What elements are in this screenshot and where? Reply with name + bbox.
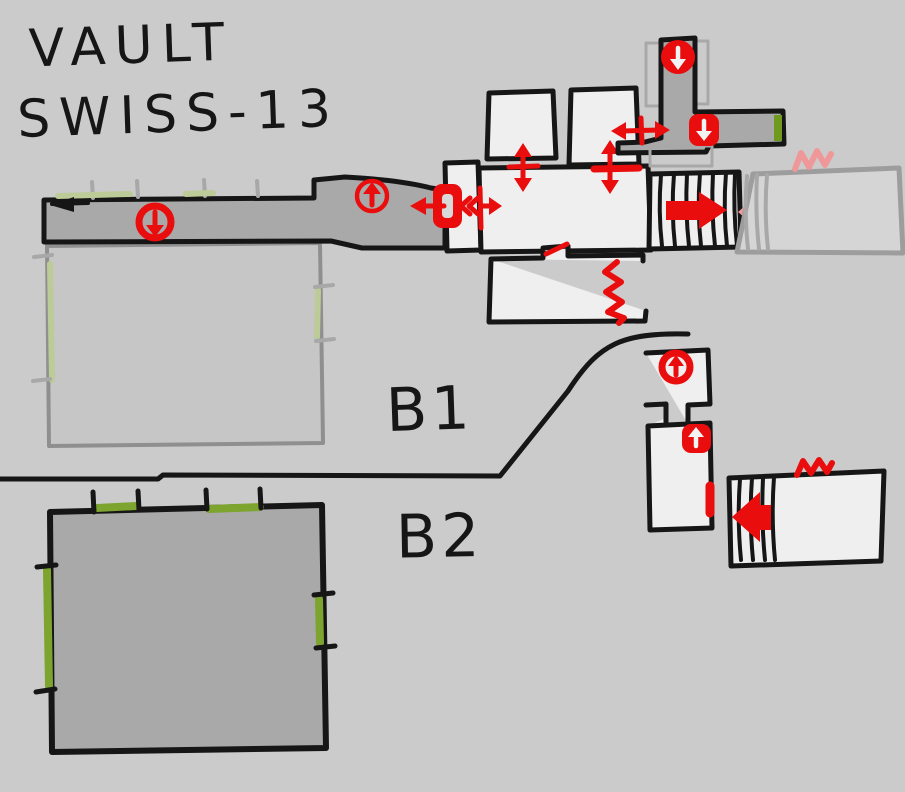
b2-barred-room — [729, 460, 884, 566]
map-title-line1: VAULT — [28, 12, 234, 79]
b1-main-hall — [479, 166, 651, 252]
hazard-zigzag-icon — [795, 151, 831, 169]
wall-highlight-marker — [58, 193, 213, 196]
hazard-zigzag-icon — [605, 262, 624, 323]
map-title: VAULT SWISS-13 — [14, 9, 341, 150]
b2-large-room — [36, 489, 335, 752]
b1-lower-room — [489, 244, 646, 323]
b1-side-room — [737, 151, 903, 253]
level-b1-label: B1 — [385, 373, 475, 446]
wall-highlight-marker — [50, 264, 52, 380]
map-title-line2: SWISS-13 — [16, 79, 341, 150]
b2-stair-room-lower — [648, 418, 712, 530]
level-b2-label: B2 — [395, 501, 484, 573]
stairs-down-icon — [689, 114, 719, 146]
wall-highlight-marker — [209, 507, 260, 509]
b2-stair-room-upper — [646, 350, 710, 424]
stairs-down-icon — [661, 40, 695, 74]
b1-large-room — [33, 243, 334, 446]
stairs-up-icon — [682, 424, 711, 453]
b1-north-corridor — [618, 38, 784, 166]
vault-map: B1 B2 — [0, 0, 905, 792]
wall-highlight-marker — [317, 290, 318, 337]
wall-highlight-marker — [47, 570, 49, 686]
wall-highlight-marker — [319, 599, 320, 643]
wall-highlight-marker — [97, 506, 136, 508]
